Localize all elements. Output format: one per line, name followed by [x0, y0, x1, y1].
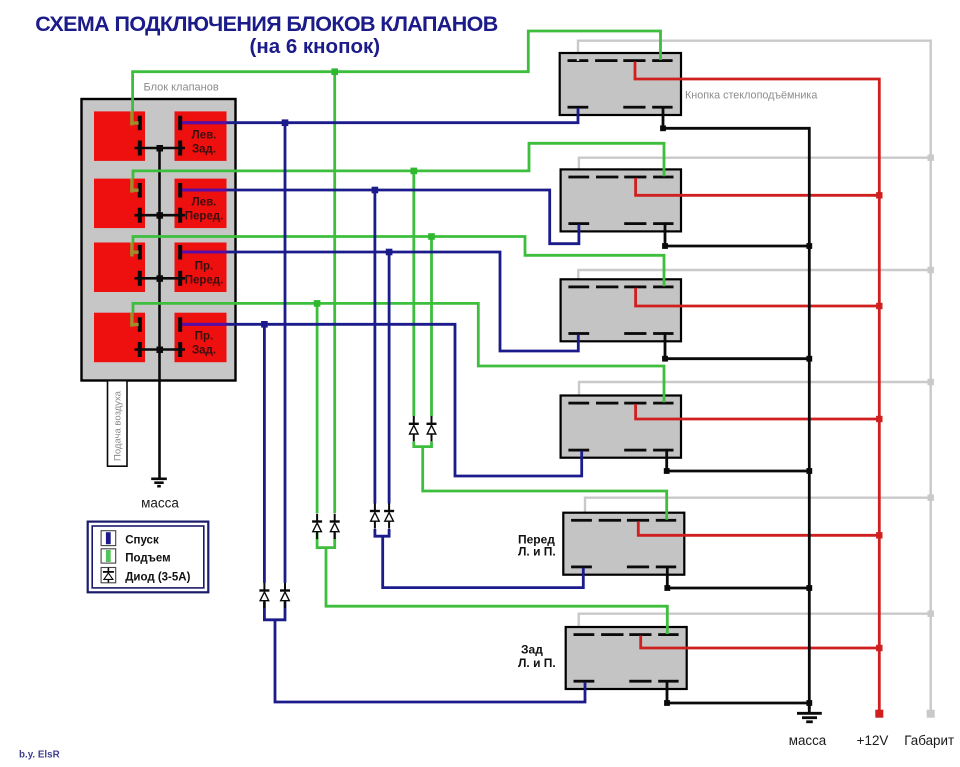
svg-text:+12V: +12V: [857, 733, 889, 748]
svg-text:Пр.: Пр.: [195, 261, 214, 273]
svg-text:Зад.: Зад.: [192, 345, 216, 357]
svg-text:Диод (3-5А): Диод (3-5А): [125, 572, 190, 584]
svg-text:СХЕМА ПОДКЛЮЧЕНИЯ БЛОКОВ КЛАПА: СХЕМА ПОДКЛЮЧЕНИЯ БЛОКОВ КЛАПАНОВ: [35, 12, 498, 36]
svg-text:масса: масса: [789, 733, 827, 748]
svg-text:b.y. ElsR: b.y. ElsR: [19, 750, 60, 761]
svg-text:Зад: Зад: [521, 643, 543, 657]
svg-text:Л. и П.: Л. и П.: [518, 545, 556, 559]
svg-text:Спуск: Спуск: [125, 534, 159, 546]
svg-text:Перед.: Перед.: [185, 211, 224, 223]
svg-text:Пр.: Пр.: [195, 331, 214, 343]
svg-text:Блок клапанов: Блок клапанов: [144, 82, 219, 94]
svg-text:(на 6 кнопок): (на 6 кнопок): [250, 35, 381, 58]
svg-text:Л. и П.: Л. и П.: [518, 656, 556, 670]
svg-text:Лев.: Лев.: [192, 197, 217, 209]
svg-text:Подача воздуха: Подача воздуха: [112, 390, 123, 461]
svg-text:Лев.: Лев.: [192, 130, 217, 142]
svg-text:Перед.: Перед.: [185, 275, 224, 287]
svg-text:Зад.: Зад.: [192, 144, 216, 156]
svg-text:Габарит: Габарит: [904, 733, 954, 748]
svg-text:Подъем: Подъем: [125, 553, 170, 565]
svg-text:Кнопка стеклоподъёмника: Кнопка стеклоподъёмника: [685, 90, 817, 102]
svg-text:масса: масса: [141, 496, 179, 511]
